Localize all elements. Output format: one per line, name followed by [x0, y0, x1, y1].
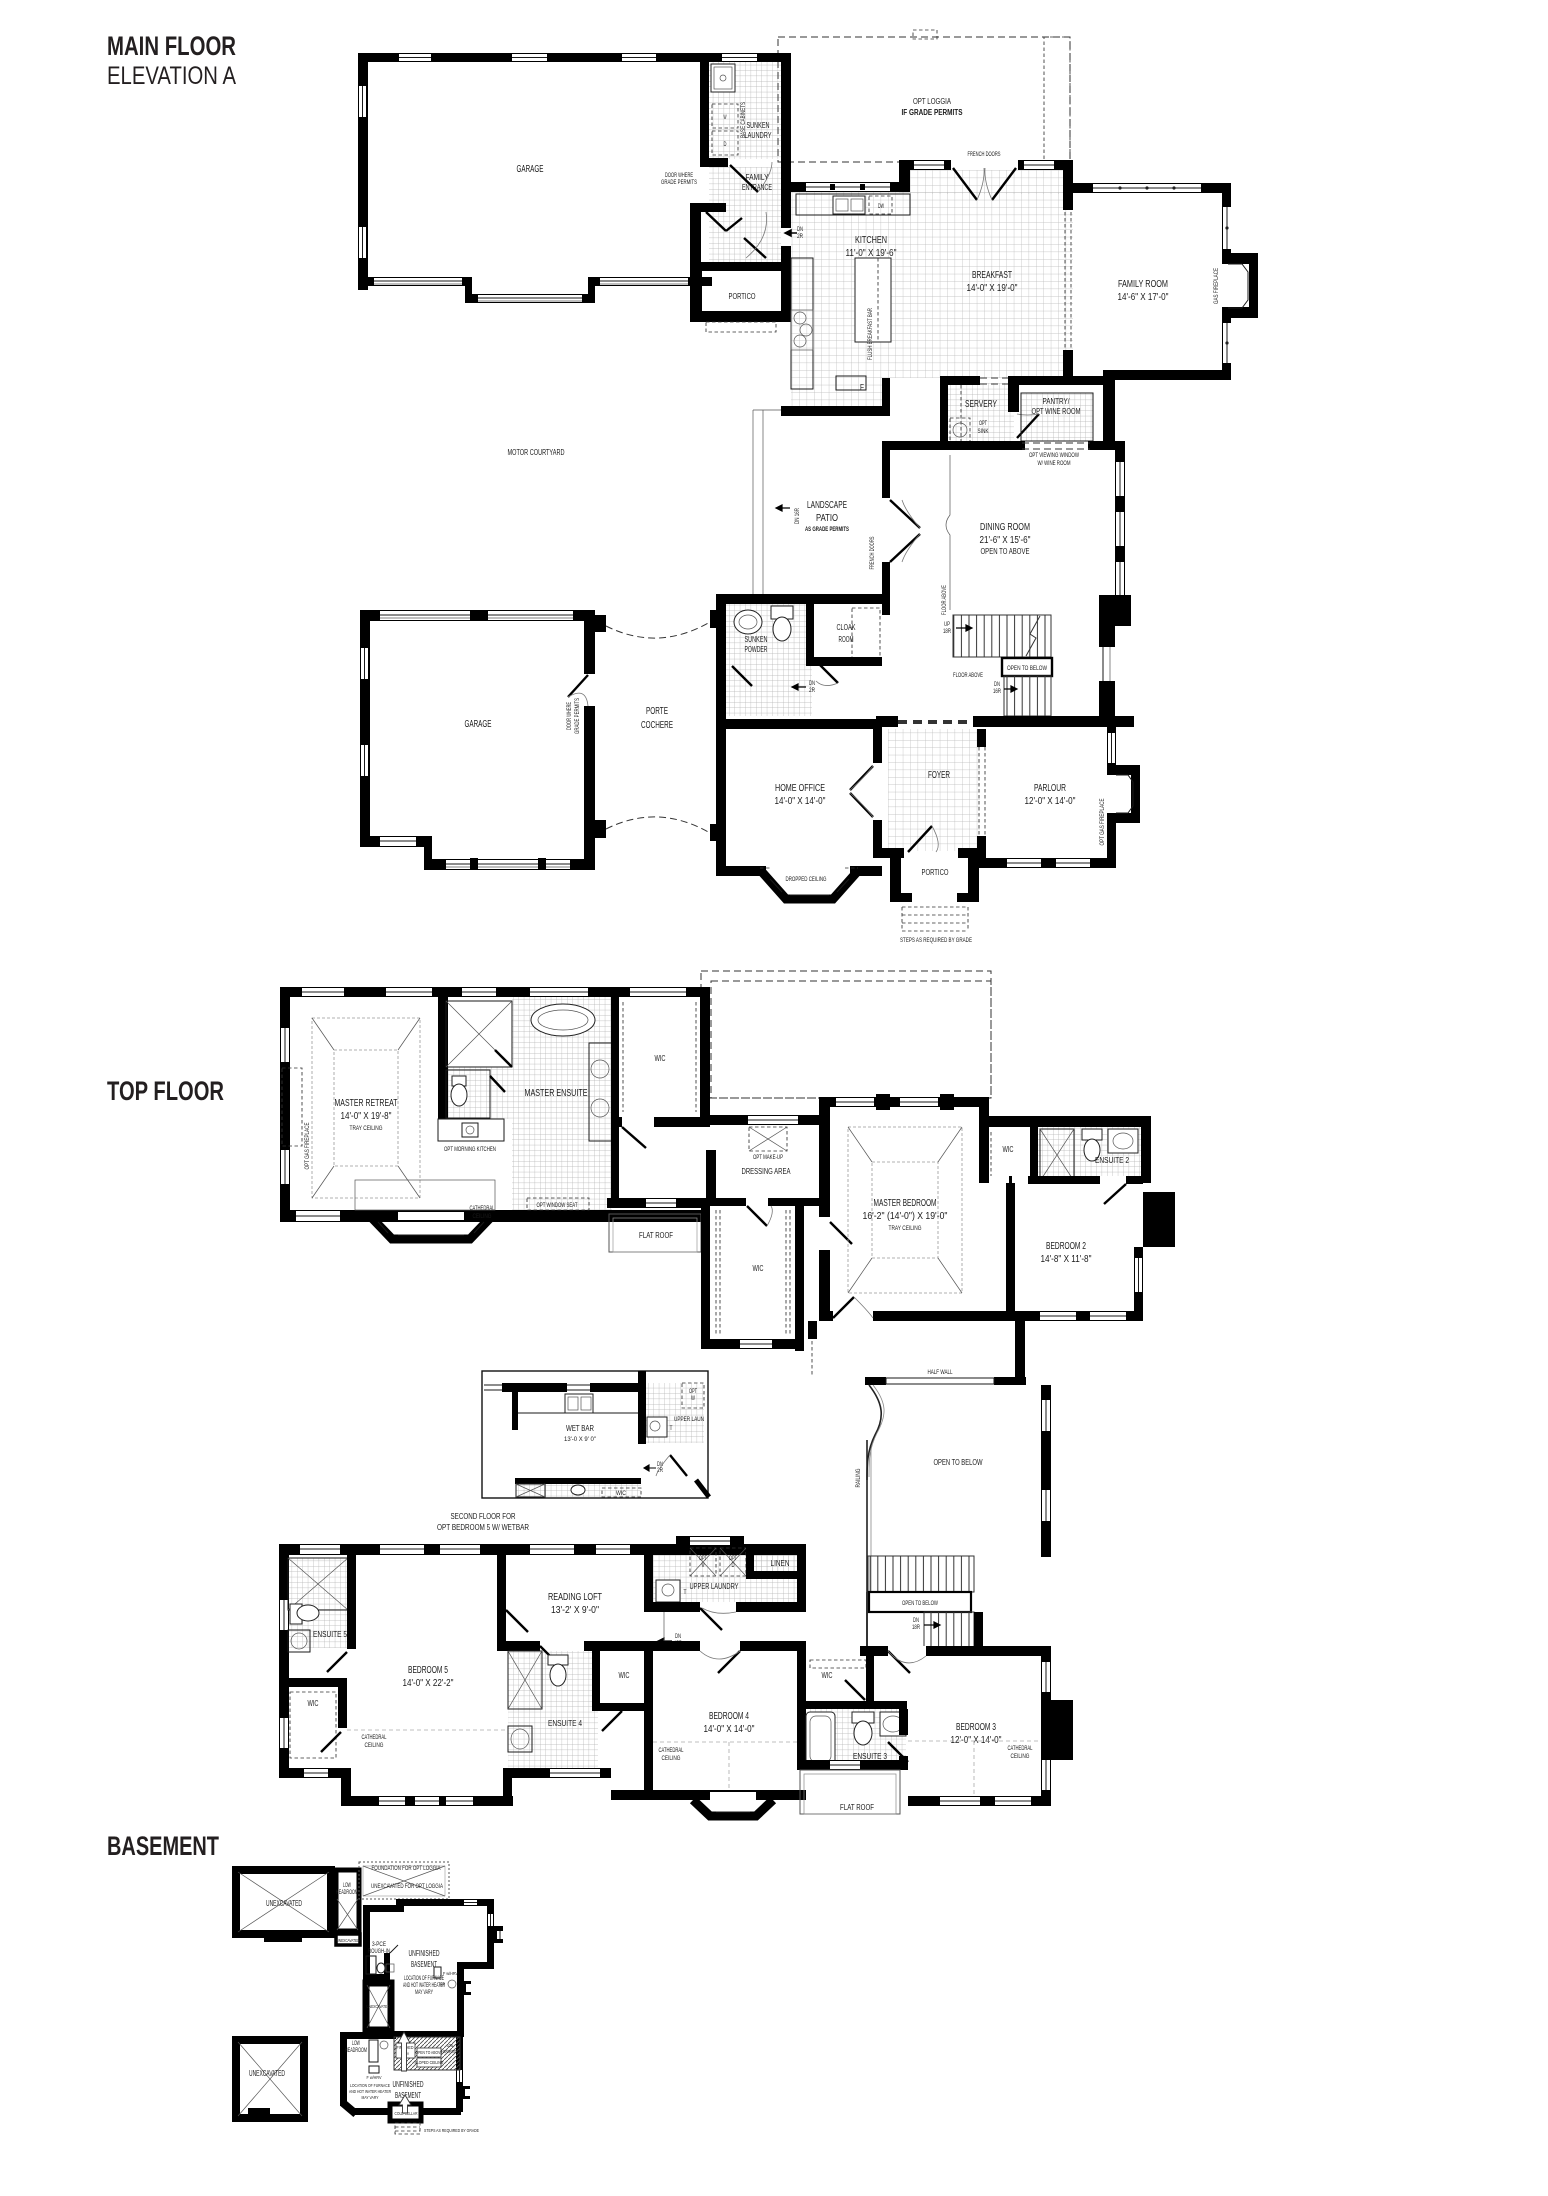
svg-text:CEILING: CEILING — [1011, 1754, 1030, 1760]
svg-text:WIC: WIC — [822, 1671, 833, 1680]
svg-text:W: W — [691, 1396, 695, 1402]
svg-text:WIC: WIC — [655, 1054, 666, 1063]
svg-text:UNFINISHED: UNFINISHED — [409, 1949, 440, 1958]
svg-text:LOW: LOW — [447, 2043, 454, 2048]
svg-text:OPT GAS FIREPLACE: OPT GAS FIREPLACE — [305, 1123, 311, 1170]
svg-text:PATIO: PATIO — [816, 513, 838, 524]
svg-text:ENSUITE 2: ENSUITE 2 — [1095, 1156, 1129, 1165]
svg-text:DOOR WHERE: DOOR WHERE — [665, 173, 693, 179]
svg-text:FLOOR ABOVE: FLOOR ABOVE — [953, 673, 983, 679]
svg-text:OPT BEDROOM 5 W/ WETBAR: OPT BEDROOM 5 W/ WETBAR — [437, 1523, 529, 1532]
svg-text:14'-0" X 22'-2": 14'-0" X 22'-2" — [403, 1678, 454, 1689]
svg-text:OPT: OPT — [729, 1556, 737, 1562]
svg-text:OPT WINDOW SEAT: OPT WINDOW SEAT — [537, 1203, 578, 1209]
svg-text:BEDROOM 5: BEDROOM 5 — [408, 1665, 448, 1676]
svg-text:16R: 16R — [993, 689, 1001, 695]
svg-text:LOCATION OF FURNACE: LOCATION OF FURNACE — [404, 1976, 444, 1982]
svg-text:CATHEDRAL: CATHEDRAL — [1008, 1746, 1033, 1752]
svg-text:D: D — [732, 1563, 735, 1569]
svg-text:AND HOT WATER HEATER: AND HOT WATER HEATER — [349, 2089, 391, 2094]
svg-text:SLOPED CEILING: SLOPED CEILING — [415, 2060, 444, 2065]
svg-text:CEILING: CEILING — [473, 1214, 492, 1220]
svg-text:UNEXCAVATED: UNEXCAVATED — [266, 1899, 302, 1908]
svg-text:OPT LOGGIA: OPT LOGGIA — [913, 97, 952, 106]
svg-text:OPEN TO BELOW: OPEN TO BELOW — [902, 1601, 938, 1607]
svg-text:11'-0" X 19'-6": 11'-0" X 19'-6" — [846, 248, 897, 259]
svg-text:PORTICO: PORTICO — [922, 868, 949, 877]
svg-text:DN 16R: DN 16R — [795, 508, 801, 524]
svg-text:14'-8" X 11'-8": 14'-8" X 11'-8" — [1041, 1254, 1092, 1265]
svg-text:14'-0" X 14'-0": 14'-0" X 14'-0" — [704, 1724, 755, 1735]
svg-text:CATHEDRAL: CATHEDRAL — [659, 1748, 684, 1754]
svg-text:2R: 2R — [797, 234, 804, 240]
svg-text:HEADROOM: HEADROOM — [442, 2049, 459, 2054]
svg-text:HWT: HWT — [439, 1982, 445, 1987]
svg-text:DN: DN — [809, 681, 815, 687]
svg-text:UNEXCAVATED: UNEXCAVATED — [249, 2069, 285, 2078]
svg-text:BASEMENT: BASEMENT — [107, 1831, 219, 1861]
svg-text:W: W — [724, 115, 727, 121]
svg-text:BASEMENT: BASEMENT — [411, 1960, 437, 1969]
svg-text:TOP FLOOR: TOP FLOOR — [107, 1076, 224, 1106]
svg-text:TRAY CEILING: TRAY CEILING — [889, 1226, 922, 1232]
svg-text:PORTICO: PORTICO — [729, 292, 756, 301]
svg-text:DN: DN — [913, 1618, 919, 1624]
svg-text:F: F — [860, 383, 864, 392]
svg-text:OPT WINE ROOM: OPT WINE ROOM — [1032, 407, 1081, 416]
svg-text:UNEXCAVATED: UNEXCAVATED — [337, 1938, 360, 1943]
svg-text:UNFINISHED: UNFINISHED — [393, 2080, 424, 2089]
svg-text:FLAT ROOF: FLAT ROOF — [840, 1803, 874, 1812]
svg-text:RAILING: RAILING — [856, 1468, 862, 1487]
svg-text:12'-0" X 14'-0": 12'-0" X 14'-0" — [1025, 796, 1076, 807]
svg-text:WIC: WIC — [308, 1699, 319, 1708]
svg-text:21'-6" X 15'-6": 21'-6" X 15'-6" — [980, 535, 1031, 546]
svg-text:BASEMENT: BASEMENT — [395, 2091, 421, 2100]
svg-text:F w/HRV: F w/HRV — [443, 1971, 458, 1976]
svg-text:CEILING: CEILING — [365, 1743, 384, 1749]
svg-text:DRESSING AREA: DRESSING AREA — [742, 1167, 791, 1176]
svg-text:MASTER BEDROOM: MASTER BEDROOM — [874, 1198, 937, 1209]
svg-text:LINEN: LINEN — [771, 1559, 790, 1568]
svg-text:READING LOFT: READING LOFT — [548, 1592, 602, 1603]
svg-text:SUNKEN: SUNKEN — [745, 635, 768, 644]
svg-text:FLAT ROOF: FLAT ROOF — [639, 1231, 673, 1240]
svg-text:STEPS AS REQUIRED BY GRADE: STEPS AS REQUIRED BY GRADE — [900, 938, 972, 944]
svg-text:OPT GAS FIREPLACE: OPT GAS FIREPLACE — [1100, 799, 1106, 846]
svg-text:LOW: LOW — [343, 1883, 351, 1889]
svg-text:DN: DN — [675, 1634, 681, 1640]
svg-text:OPT: OPT — [979, 421, 987, 427]
svg-text:14'-0" X 19'-8": 14'-0" X 19'-8" — [341, 1111, 392, 1122]
svg-text:SINK: SINK — [978, 429, 989, 435]
svg-text:14'-6" X 17'-0": 14'-6" X 17'-0" — [1118, 292, 1169, 303]
svg-text:CLOAK: CLOAK — [837, 623, 856, 632]
svg-text:DINING ROOM: DINING ROOM — [980, 522, 1030, 533]
svg-text:OPEN TO ABOVE: OPEN TO ABOVE — [981, 547, 1030, 556]
svg-text:14'-0" X 19'-0": 14'-0" X 19'-0" — [967, 283, 1018, 294]
svg-text:WET BAR: WET BAR — [566, 1424, 594, 1433]
svg-text:HALF WALL: HALF WALL — [928, 1370, 953, 1376]
svg-text:BEDROOM 2: BEDROOM 2 — [1046, 1241, 1086, 1252]
svg-text:SUNKEN: SUNKEN — [747, 121, 770, 130]
svg-text:SERVERY: SERVERY — [965, 399, 997, 410]
svg-text:CATHEDRAL: CATHEDRAL — [470, 1206, 495, 1212]
svg-text:OPT MORNING KITCHEN: OPT MORNING KITCHEN — [444, 1147, 496, 1153]
svg-text:ROOM: ROOM — [839, 635, 854, 644]
svg-text:GARAGE: GARAGE — [517, 164, 544, 175]
svg-text:CEILING: CEILING — [662, 1756, 681, 1762]
svg-text:GRADE PERMITS: GRADE PERMITS — [575, 698, 581, 734]
svg-text:SECOND FLOOR FOR: SECOND FLOOR FOR — [451, 1512, 516, 1521]
svg-text:POWDER: POWDER — [745, 645, 768, 654]
svg-text:18R: 18R — [912, 1625, 920, 1631]
svg-text:HEADROOM: HEADROOM — [336, 1890, 358, 1896]
svg-text:ENSUITE 3: ENSUITE 3 — [853, 1752, 887, 1761]
svg-text:PARLOUR: PARLOUR — [1034, 783, 1066, 794]
svg-text:AS GRADE PERMITS: AS GRADE PERMITS — [805, 527, 849, 533]
svg-text:12'-0" X 14'-0": 12'-0" X 14'-0" — [951, 1735, 1002, 1746]
svg-text:MAY VARY: MAY VARY — [362, 2095, 379, 2100]
svg-text:OPEN TO BELOW: OPEN TO BELOW — [934, 1458, 983, 1467]
svg-text:3-PCE: 3-PCE — [372, 1942, 386, 1948]
svg-text:2R: 2R — [809, 688, 816, 694]
svg-text:BREAKFAST: BREAKFAST — [972, 270, 1012, 281]
svg-text:DROPPED CEILING: DROPPED CEILING — [786, 877, 827, 883]
svg-text:TRAY CEILING: TRAY CEILING — [350, 1126, 383, 1132]
svg-text:OPEN TO BELOW: OPEN TO BELOW — [1007, 666, 1047, 672]
svg-text:MAY VARY: MAY VARY — [415, 1990, 433, 1996]
svg-text:16'-2" (14'-0") X 19'-0": 16'-2" (14'-0") X 19'-0" — [863, 1211, 948, 1222]
svg-text:ENSUITE 4: ENSUITE 4 — [548, 1719, 582, 1728]
svg-text:MASTER ENSUITE: MASTER ENSUITE — [525, 1088, 588, 1099]
svg-text:UPPER LAUNDRY: UPPER LAUNDRY — [690, 1582, 739, 1591]
svg-text:HEADROOM: HEADROOM — [345, 2048, 367, 2054]
svg-text:IF GRADE PERMITS: IF GRADE PERMITS — [902, 108, 964, 117]
svg-text:WIC: WIC — [753, 1264, 764, 1273]
svg-text:FOYER: FOYER — [928, 770, 950, 781]
svg-text:LOW: LOW — [352, 2041, 360, 2047]
svg-text:ELEVATION A: ELEVATION A — [107, 62, 236, 90]
svg-text:MOTOR COURTYARD: MOTOR COURTYARD — [508, 448, 565, 457]
svg-text:PORTE: PORTE — [646, 706, 668, 717]
svg-text:W: W — [702, 1563, 705, 1569]
svg-text:FRENCH DOORS: FRENCH DOORS — [968, 152, 1001, 158]
svg-text:LANDSCAPE: LANDSCAPE — [807, 500, 847, 511]
svg-text:LAUNDRY: LAUNDRY — [745, 131, 772, 140]
svg-text:13'-2' X 9'-0": 13'-2' X 9'-0" — [551, 1605, 599, 1616]
svg-text:OPT: OPT — [689, 1389, 697, 1395]
svg-text:GRADE PERMITS: GRADE PERMITS — [661, 180, 697, 186]
svg-text:UNEXCAVATED FOR OPT LOGGIA: UNEXCAVATED FOR OPT LOGGIA — [371, 1884, 443, 1890]
svg-text:FLUSH BREAKFAST BAR: FLUSH BREAKFAST BAR — [868, 308, 874, 360]
svg-text:BEDROOM 4: BEDROOM 4 — [709, 1711, 749, 1722]
svg-text:FAMILY ROOM: FAMILY ROOM — [1118, 279, 1168, 290]
svg-text:HOME OFFICE: HOME OFFICE — [775, 783, 825, 794]
svg-text:OPT MAKE-UP: OPT MAKE-UP — [753, 1155, 783, 1161]
svg-text:DN: DN — [797, 227, 803, 233]
svg-text:18R: 18R — [943, 629, 951, 635]
svg-text:T: T — [670, 1426, 673, 1432]
svg-text:D: D — [724, 142, 727, 148]
svg-text:GARAGE: GARAGE — [465, 719, 492, 730]
svg-text:LOCATION OF FURNACE: LOCATION OF FURNACE — [350, 2083, 390, 2088]
svg-text:14'-0" X 14'-0": 14'-0" X 14'-0" — [775, 796, 826, 807]
svg-text:UNEXCAVATED: UNEXCAVATED — [367, 2004, 390, 2009]
svg-text:CATHEDRAL: CATHEDRAL — [362, 1735, 387, 1741]
svg-text:WIC: WIC — [1003, 1145, 1014, 1154]
svg-text:OPEN TO ABOVE: OPEN TO ABOVE — [416, 2050, 443, 2055]
svg-text:W/ WINE ROOM: W/ WINE ROOM — [1038, 461, 1071, 467]
svg-text:DN: DN — [994, 682, 1000, 688]
svg-text:DW: DW — [878, 204, 884, 210]
svg-text:STEPS AS REQUIRED BY GRADE: STEPS AS REQUIRED BY GRADE — [424, 2128, 479, 2133]
svg-text:FOUNDATION FOR OPT LOGGIA: FOUNDATION FOR OPT LOGGIA — [372, 1866, 441, 1872]
svg-text:OPT VIEWING WINDOW: OPT VIEWING WINDOW — [1029, 453, 1079, 459]
svg-text:MASTER RETREAT: MASTER RETREAT — [335, 1098, 398, 1109]
svg-text:KITCHEN: KITCHEN — [855, 235, 887, 246]
svg-text:PANTRY/: PANTRY/ — [1043, 397, 1071, 406]
svg-text:13'-0 X 9' 0": 13'-0 X 9' 0" — [564, 1437, 596, 1443]
svg-text:COCHERE: COCHERE — [641, 720, 673, 731]
svg-text:BEDROOM 3: BEDROOM 3 — [956, 1722, 996, 1733]
svg-text:MAIN FLOOR: MAIN FLOOR — [107, 31, 236, 61]
svg-text:UP: UP — [944, 622, 950, 628]
svg-text:OPT: OPT — [699, 1556, 707, 1562]
svg-text:FLOOR ABOVE: FLOOR ABOVE — [942, 585, 948, 615]
svg-text:ENSUITE 5: ENSUITE 5 — [313, 1630, 347, 1639]
svg-text:GAS FIREPLACE: GAS FIREPLACE — [1214, 268, 1220, 304]
svg-text:UPPER LAUN: UPPER LAUN — [674, 1417, 704, 1423]
svg-text:DOOR WHERE: DOOR WHERE — [567, 702, 573, 730]
svg-text:WIC: WIC — [619, 1671, 630, 1680]
svg-text:F w/HRV: F w/HRV — [367, 2075, 382, 2080]
svg-text:WIC: WIC — [616, 1491, 627, 1497]
svg-text:T: T — [684, 1590, 687, 1596]
svg-text:FRENCH DOORS: FRENCH DOORS — [870, 537, 876, 570]
